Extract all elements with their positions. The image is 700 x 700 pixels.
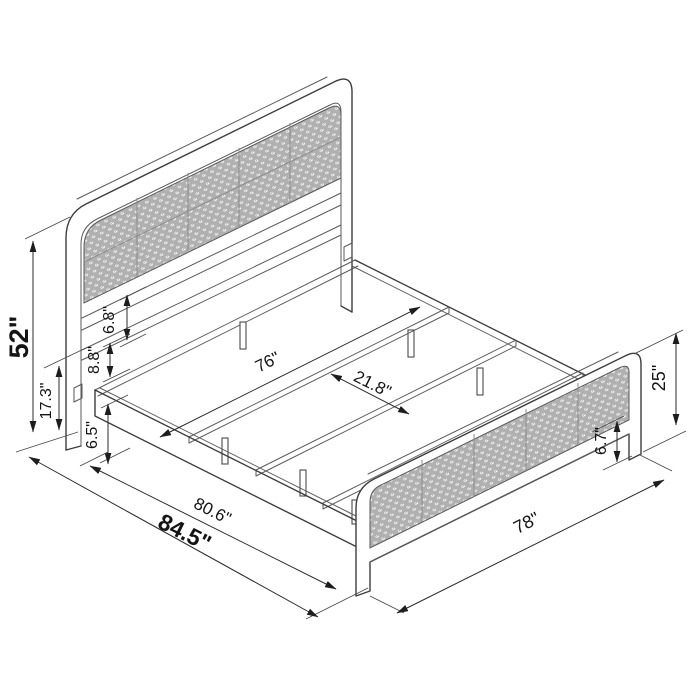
- headboard: [66, 77, 352, 450]
- left-side-rail-top: [95, 390, 363, 524]
- dim-label-footboard-width: 78": [510, 508, 543, 538]
- dim-label-headboard-height: 52": [4, 316, 34, 359]
- support-leg: [477, 368, 483, 395]
- dim-label-footboard-leg-height: 6.7": [593, 427, 610, 455]
- support-leg: [240, 322, 246, 349]
- witness-80-6: [80, 452, 368, 619]
- footboard: [356, 352, 641, 596]
- headboard-cane-panel: [84, 106, 341, 303]
- dim-label-headboard-bar-spacing: 8.8": [86, 346, 103, 374]
- dim-label-side-rail-height: 6.5": [84, 421, 101, 449]
- diagram-svg: 52" 17.3" 6.8" 8.8" 6.5" 76" 21.8" 80.6"…: [0, 0, 700, 700]
- left-side-rail-top-face: [100, 388, 368, 522]
- support-leg: [408, 330, 414, 357]
- left-side-rail-bottom: [95, 390, 363, 550]
- cross-slat-1: [189, 307, 449, 443]
- dim-label-footboard-height: 25": [649, 365, 669, 391]
- dim-label-headboard-panel-gap: 6.8": [101, 306, 118, 334]
- dim-line-76: [160, 307, 420, 437]
- witness-6-8: [120, 287, 146, 347]
- dim-label-headboard-frame-height: 17.3": [38, 383, 55, 420]
- dim-label-inner-width: 76": [252, 348, 283, 376]
- dim-line-80-6: [90, 466, 336, 589]
- dim-label-slat-spacing: 21.8": [351, 367, 394, 401]
- support-leg: [300, 470, 306, 496]
- bed-dimension-diagram: 52" 17.3" 6.8" 8.8" 6.5" 76" 21.8" 80.6"…: [0, 0, 700, 700]
